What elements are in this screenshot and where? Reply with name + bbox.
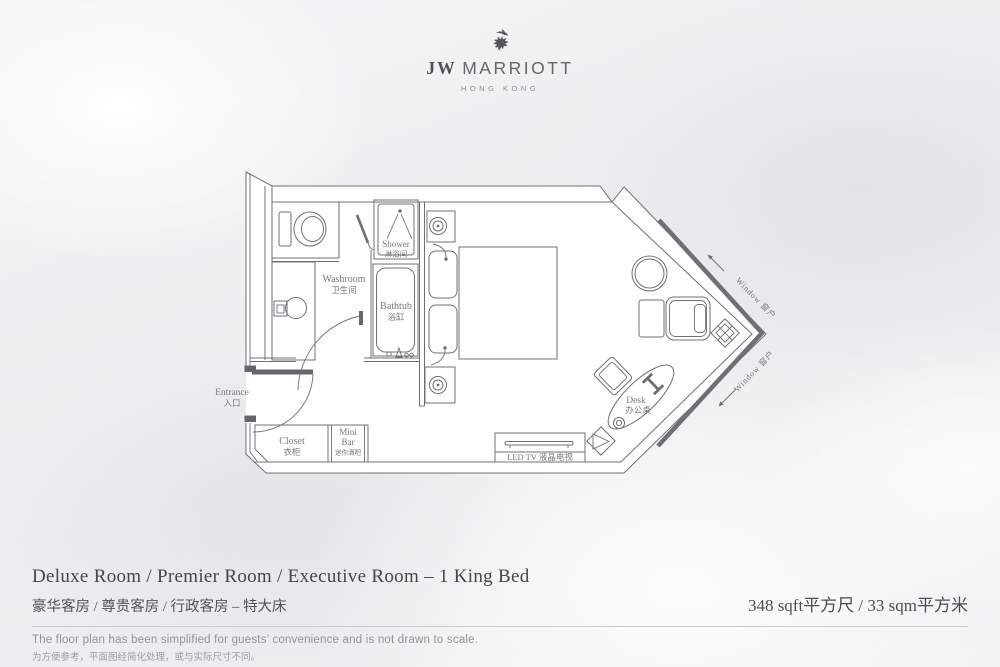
- minibar-label-en1: Mini: [339, 427, 357, 437]
- entrance-wall-cap-top: [245, 366, 257, 373]
- washroom-door-leaf: [359, 311, 363, 325]
- entrance-door-leaf: [252, 370, 313, 375]
- washroom-label-en: Washroom: [322, 274, 365, 285]
- entrance-label-en: Entrance: [215, 388, 249, 398]
- disclaimer-zh: 为方便参考，平面图经简化处理，或与实际尺寸不同。: [32, 649, 968, 663]
- entrance-label-zh: 入口: [223, 398, 240, 408]
- minibar-label-zh: 迷你酒吧: [335, 448, 362, 457]
- bathtub-label-en: Bathtub: [380, 301, 412, 312]
- closet-label-en: Closet: [279, 436, 305, 447]
- caption-footer: Deluxe Room / Premier Room / Executive R…: [32, 566, 968, 663]
- shower-label-zh: 淋浴间: [385, 249, 408, 259]
- desk-label-zh: 办公桌: [625, 405, 651, 415]
- room-title-zh: 豪华客房 / 尊贵客房 / 行政客房 – 特大床: [32, 595, 530, 616]
- room-floor: [246, 172, 766, 473]
- bathtub-label-zh: 浴缸: [387, 312, 405, 322]
- room-titles: Deluxe Room / Premier Room / Executive R…: [32, 566, 530, 616]
- minibar-label-en2: Bar: [342, 437, 355, 447]
- footer-divider: [32, 626, 968, 627]
- disclaimer-en: The floor plan has been simplified for g…: [32, 634, 968, 646]
- washroom-label-zh: 卫生间: [331, 285, 357, 295]
- closet-label-zh: 衣柜: [283, 447, 301, 457]
- room-title-en: Deluxe Room / Premier Room / Executive R…: [32, 566, 530, 588]
- shower-label-en: Shower: [382, 239, 410, 249]
- room-area: 348 sqft平方尺 / 33 sqm平方米: [748, 591, 968, 616]
- tv-label: LED TV 液晶电视: [507, 452, 573, 462]
- jw-marriott-floorplan-page: { "header": { "brand_jw": "JW", "brand_m…: [0, 0, 1000, 667]
- entrance-wall-cap-bottom: [245, 416, 257, 423]
